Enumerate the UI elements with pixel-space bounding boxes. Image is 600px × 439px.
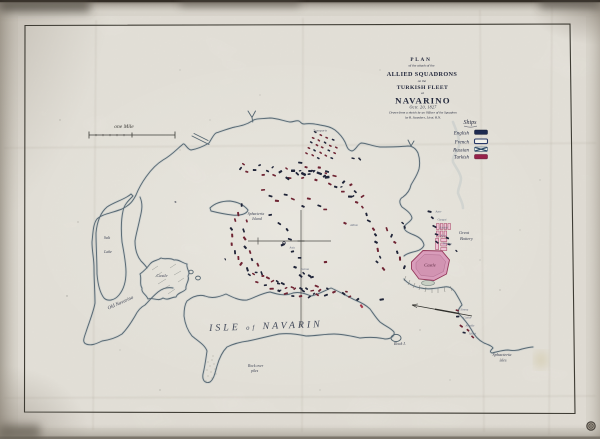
svg-text:Ezekiel: Ezekiel bbox=[439, 226, 449, 230]
svg-text:Rock over: Rock over bbox=[247, 364, 264, 368]
svg-text:Ships: Ships bbox=[463, 120, 477, 126]
svg-text:French: French bbox=[454, 141, 470, 146]
svg-text:Talbot: Talbot bbox=[469, 332, 477, 336]
svg-text:Albion: Albion bbox=[349, 223, 358, 227]
svg-text:Armide: Armide bbox=[465, 324, 476, 328]
svg-text:Breslau: Breslau bbox=[443, 242, 453, 246]
svg-text:Sphacteria: Sphacteria bbox=[492, 352, 512, 357]
svg-text:Drawn from a sketch by an Offi: Drawn from a sketch by an Officer of the… bbox=[388, 111, 457, 115]
svg-text:isles: isles bbox=[499, 358, 507, 363]
svg-text:PLAN: PLAN bbox=[410, 57, 431, 63]
svg-text:of the attack of the: of the attack of the bbox=[408, 64, 434, 68]
svg-text:Rock I.: Rock I. bbox=[393, 341, 406, 346]
svg-text:Asia: Asia bbox=[289, 246, 296, 250]
svg-text:on the: on the bbox=[418, 79, 427, 83]
svg-text:English: English bbox=[453, 132, 470, 137]
svg-text:Great: Great bbox=[459, 230, 470, 235]
svg-text:Gangut: Gangut bbox=[438, 218, 447, 222]
svg-text:Castle: Castle bbox=[156, 273, 167, 278]
svg-text:Russian: Russian bbox=[452, 149, 469, 154]
svg-text:piles: piles bbox=[250, 369, 259, 373]
svg-text:Salt: Salt bbox=[104, 235, 111, 240]
svg-text:Castor: Castor bbox=[464, 316, 473, 320]
svg-text:Azov: Azov bbox=[435, 210, 443, 214]
svg-text:Sirena: Sirena bbox=[461, 308, 469, 312]
svg-text:Transports: Transports bbox=[313, 129, 328, 133]
svg-text:Lake: Lake bbox=[103, 249, 112, 254]
svg-text:one Mile: one Mile bbox=[114, 124, 134, 130]
svg-text:Castle: Castle bbox=[424, 263, 436, 268]
svg-text:Island: Island bbox=[251, 217, 262, 221]
svg-text:Battery: Battery bbox=[460, 236, 473, 241]
svg-text:Genoa: Genoa bbox=[301, 267, 309, 271]
svg-text:ALLIED SQUADRONS: ALLIED SQUADRONS bbox=[387, 71, 458, 78]
svg-text:Alex.: Alex. bbox=[440, 234, 447, 238]
svg-text:Turkish: Turkish bbox=[454, 156, 470, 161]
svg-text:Sphacteria: Sphacteria bbox=[248, 212, 265, 216]
